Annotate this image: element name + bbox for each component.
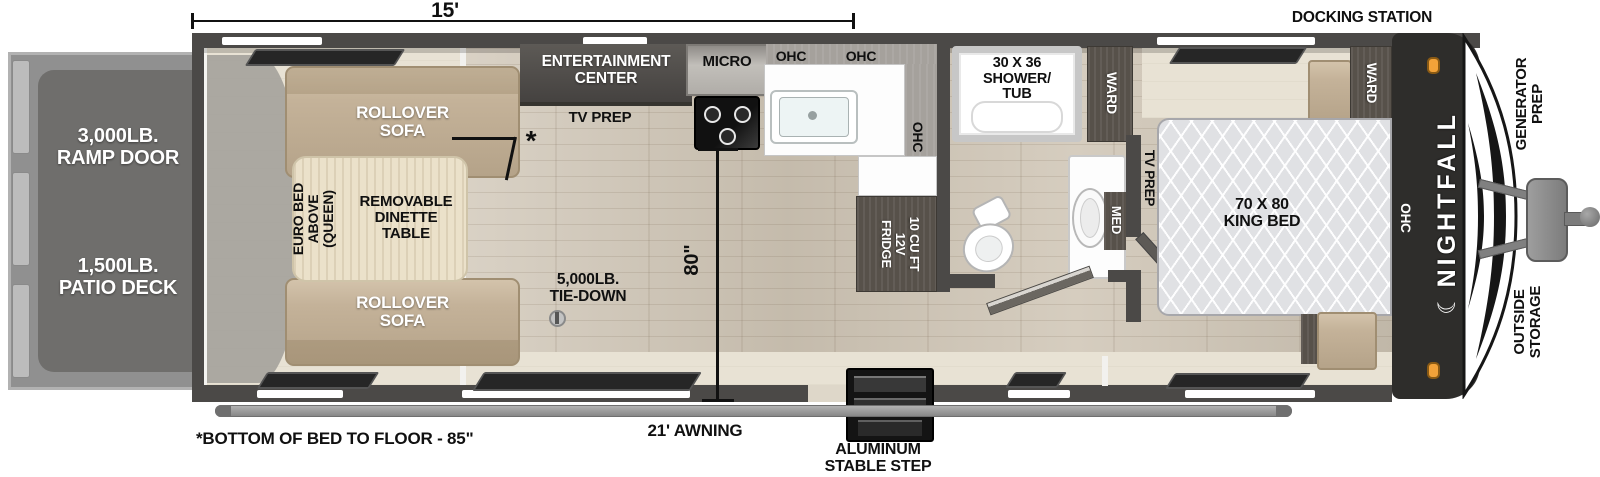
hall-partition [1102,356,1108,386]
step-tread [858,420,922,436]
awning-label: 21' AWNING [600,422,790,442]
height-dimension-line [716,150,719,402]
length-dimension-tick-left [191,13,194,29]
bedside-drawer-bottom [1301,314,1317,364]
bath-wardrobe-label: WARD [1101,47,1119,139]
sofa-bottom-backrest [287,340,518,364]
bedroom-wall-stub [1108,270,1126,282]
rollover-sofa-bottom-label: ROLLOVER SOFA [320,294,485,334]
step-tread [854,376,926,392]
bedroom-tv-prep-label: TV PREP [1140,138,1156,218]
kitchen-counter-corner [858,156,937,196]
euro-bed-label: EURO BED ABOVE (QUEEN) [291,154,349,284]
ohc-label-2: OHC [840,49,882,65]
bedside-cabinet-top [1308,60,1352,124]
window-bottom-bedroom [1185,390,1315,398]
mat-main-bottom [472,372,702,391]
awning-end-right [1276,405,1292,417]
moon-icon: ☾ [1433,293,1462,315]
height-dimension-label: 80" [682,228,706,292]
mat-garage-top [245,49,406,66]
floorplan-canvas: 15' 3,000LB. RAMP DOOR 1,500LB. PATIO DE… [0,0,1600,477]
vanity-sink [1072,188,1108,248]
tie-down-slot [555,312,559,324]
awning-end-left [215,405,231,417]
tie-down-label: 5,000LB. TIE-DOWN [540,272,636,306]
faucet-icon [808,111,817,120]
mat-entry-door [1005,372,1067,388]
propane-cover [1526,178,1568,262]
kitchen-sink [770,90,858,144]
ramp-hinge-bottom [12,284,30,378]
front-cap-graphic [1462,33,1518,399]
bed-height-asterisk: * [518,126,544,152]
mat-garage-bottom [257,372,380,389]
bath-wall-left [937,48,950,292]
cooktop [694,96,760,150]
docking-station-label: DOCKING STATION [1256,10,1468,30]
ramp-door-panel [38,70,198,372]
window-top-garage [222,37,322,45]
bath-wall-bottom [937,274,995,288]
burner-icon [734,106,751,123]
entertainment-center-label: ENTERTAINMENT CENTER [522,54,690,94]
refrigerator-label: 10 CU FT 12V FRIDGE [873,198,921,290]
mat-bedroom-bottom [1165,373,1311,389]
length-dimension-tick-right [852,13,855,29]
length-dimension-line [192,20,855,22]
sofa-top-backrest [287,68,518,94]
entry-door-threshold [808,385,846,402]
bedside-cabinet-bottom [1317,312,1377,370]
bottom-wall-right [934,385,1392,402]
outside-storage-label: OUTSIDE STORAGE [1512,252,1548,392]
stable-step-label: ALUMINUM STABLE STEP [798,441,958,475]
window-bottom-garage [257,390,343,398]
generator-prep-label: GENERATOR PREP [1514,29,1550,179]
clearance-light-bottom-icon [1427,362,1440,379]
ohc-label-side: OHC [907,111,925,163]
clearance-light-top-icon [1427,57,1440,74]
ohc-label-1: OHC [770,49,812,65]
shower-tub-label: 30 X 36 SHOWER/ TUB [958,56,1076,112]
brand-logo: ☾ NIGHTFALL [1430,78,1464,348]
vanity-basin [1080,198,1100,238]
bedroom-wall-lower [1126,270,1141,322]
tv-prep-label: TV PREP [540,110,660,128]
window-top-bedroom [1157,37,1315,45]
height-dimension-tick-bottom [702,399,734,402]
bedroom-wardrobe-label: WARD [1362,47,1378,119]
bedroom-wall-upper [1126,135,1141,237]
ramp-door-label: 3,000LB. RAMP DOOR [48,126,188,172]
window-bottom-hall [1008,390,1070,398]
height-dimension-tick-top [698,148,738,151]
brand-logo-text: NIGHTFALL [1434,111,1461,287]
bed-floor-note-label: *BOTTOM OF BED TO FLOOR - 85" [196,430,616,450]
med-cabinet-label: MED [1107,190,1123,250]
mat-bedroom-top [1169,47,1308,64]
rear-wall [192,33,204,402]
bed-ohc-label: OHC [1396,191,1412,245]
king-bed-label: 70 X 80 KING BED [1192,196,1332,238]
window-bottom-main [462,390,690,398]
length-dimension-label: 15' [385,0,505,19]
bed-height-mark-line [452,137,516,140]
hitch-ball-icon [1580,207,1600,227]
burner-icon [719,128,736,145]
awning-rail [215,405,1292,417]
ramp-hinge-top [12,60,30,154]
ramp-hinge-middle [12,172,30,266]
dinette-table-label: REMOVABLE DINETTE TABLE [352,194,460,256]
microwave-label: MICRO [686,54,768,72]
burner-icon [704,106,721,123]
tie-down-anchor-icon [549,310,566,327]
patio-deck-label: 1,500LB. PATIO DECK [44,256,192,302]
